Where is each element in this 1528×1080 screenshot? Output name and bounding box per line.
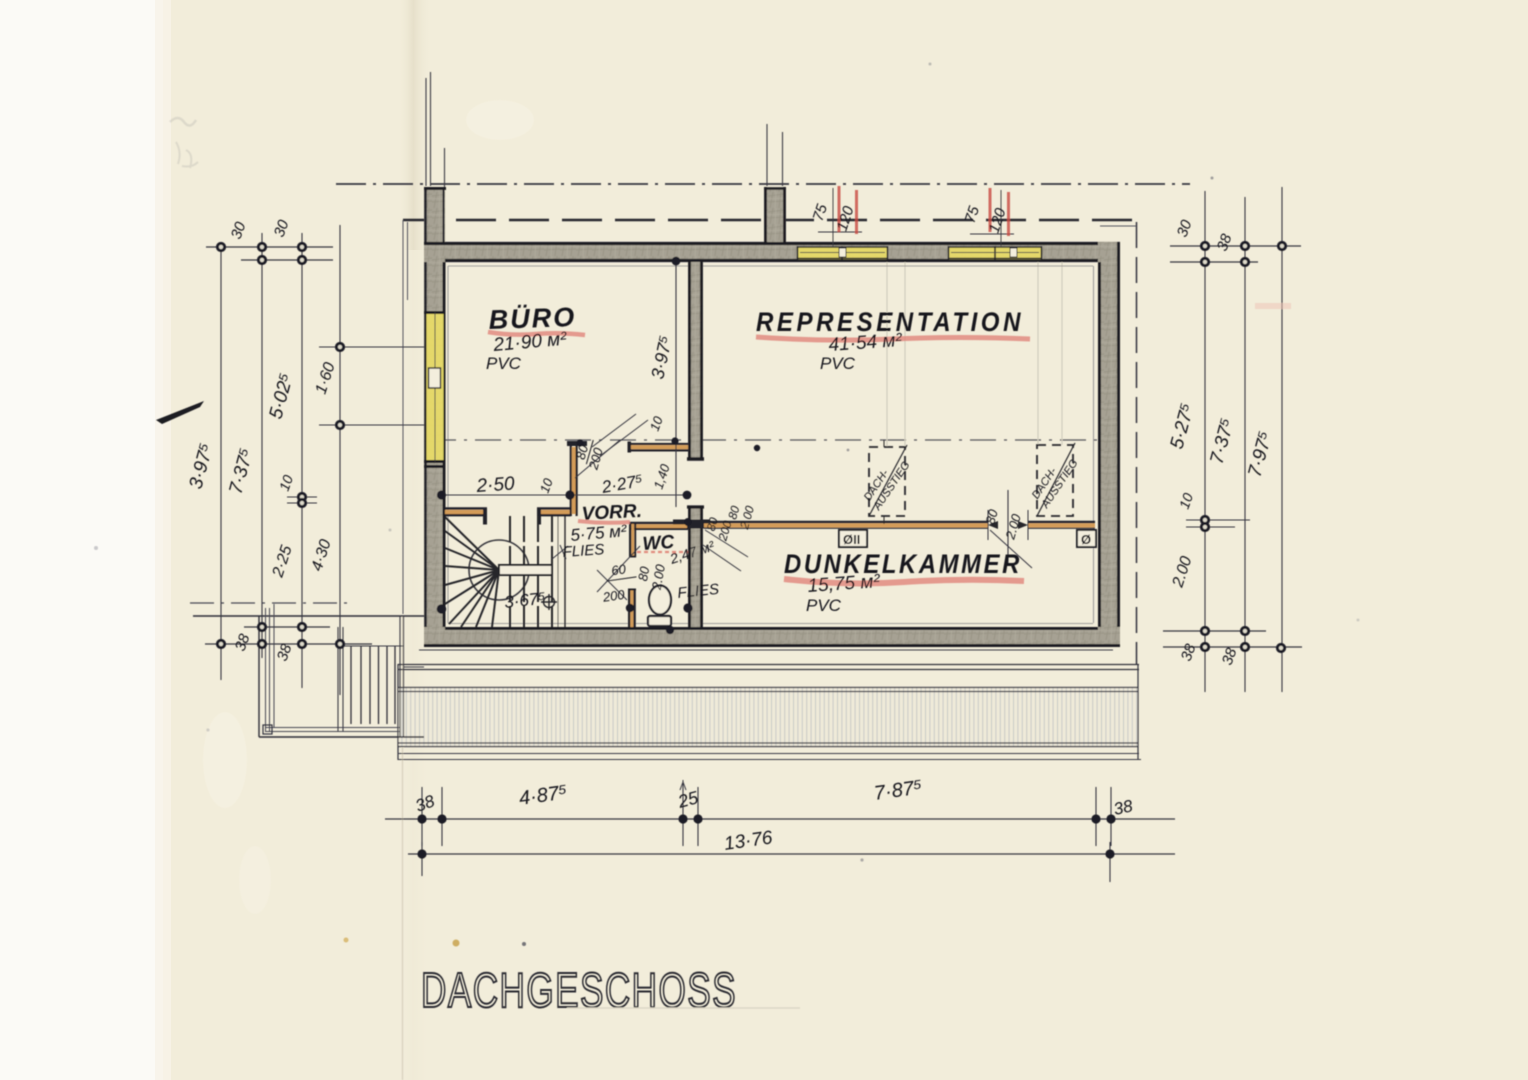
svg-text:60: 60	[610, 561, 627, 578]
svg-text:DACHGESCHOSS: DACHGESCHOSS	[421, 964, 737, 1018]
svg-text:2·50: 2·50	[475, 473, 516, 497]
svg-text:VORR.: VORR.	[581, 501, 642, 525]
svg-text:Ø: Ø	[1081, 532, 1091, 547]
svg-text:PVC: PVC	[820, 354, 856, 373]
svg-text:PVC: PVC	[486, 354, 522, 373]
svg-text:FLIES: FLIES	[562, 541, 605, 561]
svg-text:ØII: ØII	[843, 532, 860, 547]
svg-text:PVC: PVC	[806, 596, 842, 615]
